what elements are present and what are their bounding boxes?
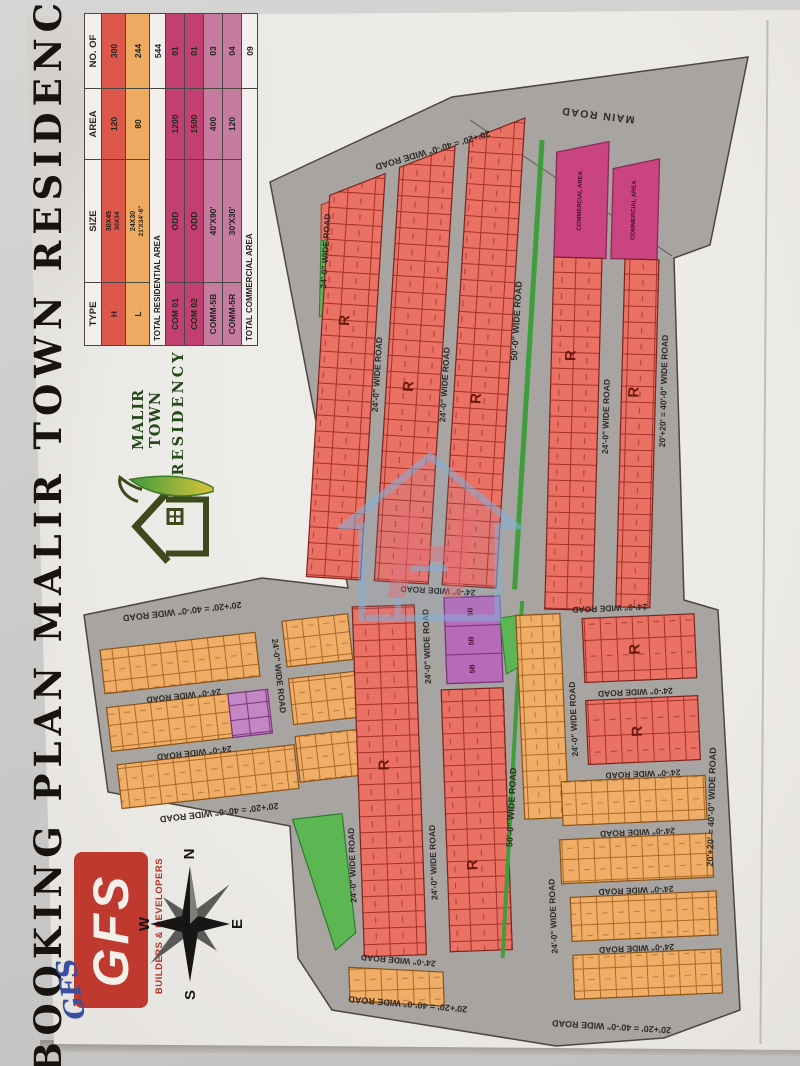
legend-row-com02: COM 02 ODD 1500 01	[185, 14, 204, 346]
logo-line2: RESIDENCY	[170, 363, 187, 475]
size-line2: 30X34	[114, 162, 121, 280]
size-cell: 30X45 30X34	[102, 160, 126, 283]
block-r-label: R	[400, 380, 418, 392]
compass-s: S	[182, 990, 199, 1000]
total-commercial-label: TOTAL COMMERCIAL AREA	[242, 89, 258, 346]
area-cell: 120	[223, 89, 242, 160]
road-label-24: 24'-0" WIDE ROAD	[600, 379, 612, 454]
legend-header-row: TYPE SIZE AREA NO. OF	[85, 14, 102, 346]
col-area: AREA	[85, 89, 102, 160]
type-cell: COMM-5R	[223, 283, 242, 346]
block-r-label: R	[629, 725, 646, 737]
logo-line1: MALIR TOWN	[130, 363, 164, 475]
area-cell: 1200	[166, 89, 185, 160]
total-residential-row: TOTAL RESIDENTIAL AREA 544	[150, 14, 166, 346]
malir-logo-text: MALIR TOWN RESIDENCY	[130, 363, 187, 475]
col-type: TYPE	[85, 283, 102, 346]
total-residential-value: 544	[150, 14, 166, 89]
type-cell: COM 02	[185, 283, 204, 346]
compass-n: N	[181, 849, 198, 860]
count-cell: 03	[204, 14, 223, 89]
type-cell: COM 01	[166, 283, 185, 346]
count-cell: 01	[185, 14, 204, 89]
legend-row-comm5r: COMM-5R 30'X30' 120 04	[223, 14, 242, 346]
size-cell: ODD	[166, 160, 185, 283]
block-r-label: R	[336, 314, 354, 326]
block-r-label: R	[464, 859, 481, 871]
size-cell: ODD	[185, 160, 204, 283]
gfs-abbr: GFS	[86, 873, 136, 988]
col-count: NO. OF	[85, 14, 102, 89]
total-commercial-row: TOTAL COMMERCIAL AREA 09	[242, 14, 258, 346]
block-r-label: R	[376, 759, 393, 771]
type-cell: H	[102, 283, 126, 346]
photographed-site-plan: MAIN ROAD 20'+20' = 40'-0" WIDE ROAD 24'…	[0, 0, 800, 1066]
count-cell: 04	[223, 14, 242, 89]
block-r-label: R	[562, 350, 579, 361]
legend-row-comm5b: COMM-5B 40'X90' 400 03	[204, 14, 223, 346]
compass-e: E	[229, 919, 242, 929]
area-cell: 400	[204, 89, 223, 160]
col-size: SIZE	[85, 160, 102, 283]
area-cell: 1500	[185, 89, 204, 160]
type-cell: COMM-5B	[204, 283, 223, 346]
compass-rose: N S W E	[138, 840, 242, 1004]
malir-logo-box: MALIR TOWN RESIDENCY	[100, 360, 228, 567]
count-cell: 244	[126, 14, 150, 89]
legend-row-h: H 30X45 30X34 120 300	[102, 14, 126, 346]
house-leaf-icon	[108, 471, 228, 571]
area-cell: 80	[126, 89, 150, 160]
size-line1: 24X30	[130, 162, 138, 280]
commercial-5r-block	[228, 689, 273, 737]
type-cell: L	[126, 283, 150, 346]
size-cell: 24X30 21'X34'-6"	[126, 160, 150, 283]
legend-table: TYPE SIZE AREA NO. OF H 30X45 30X34 120 …	[84, 13, 258, 346]
total-residential-label: TOTAL RESIDENTIAL AREA	[150, 89, 166, 346]
count-cell: 01	[166, 14, 185, 89]
area-cell: 120	[102, 89, 126, 160]
size-line1: 30X45	[106, 162, 114, 280]
plot-5b-label: 5B	[469, 664, 476, 673]
total-commercial-value: 09	[242, 14, 258, 89]
legend-table-box: TYPE SIZE AREA NO. OF H 30X45 30X34 120 …	[84, 28, 258, 346]
block-r-label: R	[626, 643, 643, 655]
size-cell: 40'X90'	[204, 160, 223, 283]
legend-row-l: L 24X30 21'X34'-6" 80 244	[126, 14, 150, 346]
compass-w: W	[138, 916, 153, 931]
size-cell: 30'X30'	[223, 160, 242, 283]
watermark-letter: H	[385, 486, 478, 625]
size-line2: 21'X34'-6"	[138, 162, 145, 280]
watermark-house-icon: H	[338, 448, 523, 643]
block-r-label: R	[467, 392, 485, 404]
count-cell: 300	[102, 14, 126, 89]
block-r-label: R	[625, 386, 642, 397]
legend-row-com01: COM 01 ODD 1200 01	[166, 14, 185, 346]
